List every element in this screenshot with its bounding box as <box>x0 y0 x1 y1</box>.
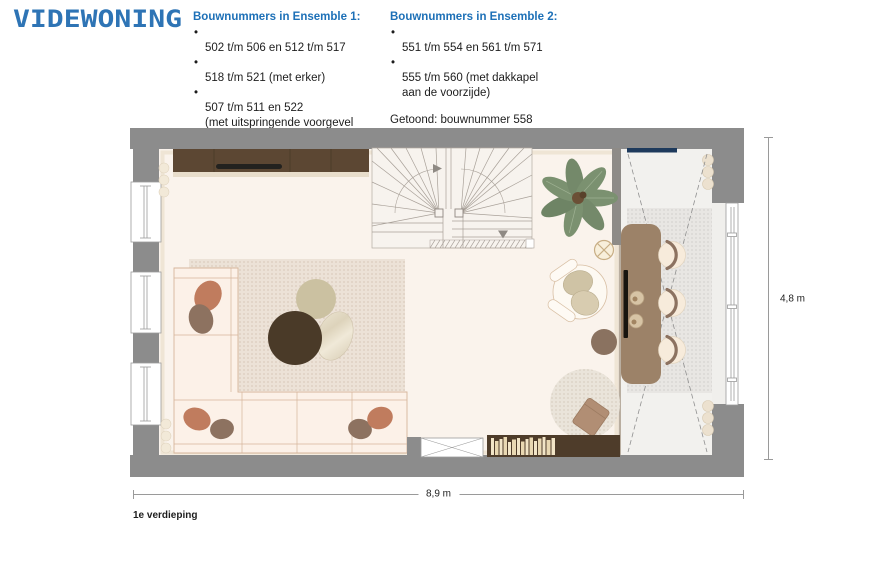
height-dimension-label: 4,8 m <box>780 293 805 304</box>
wall-top <box>130 128 744 149</box>
bookshelf <box>487 435 620 457</box>
ensemble-2-item-text: 555 t/m 560 (met dakkapel aan de voorzij… <box>402 72 538 99</box>
ensemble-1-item: •502 t/m 506 en 512 t/m 517 <box>193 26 385 56</box>
bullet-icon: • <box>194 56 198 71</box>
dining-set <box>621 224 686 384</box>
floor-plan-svg <box>130 128 744 477</box>
right-window <box>726 203 738 405</box>
ensemble-1-item-text: 502 t/m 506 en 512 t/m 517 <box>205 42 346 54</box>
stair-post <box>435 209 443 217</box>
bullet-icon: • <box>391 26 395 41</box>
chair <box>659 242 686 269</box>
left-windows <box>131 182 161 425</box>
wall-bottom <box>130 455 744 477</box>
bullet-icon: • <box>194 86 198 101</box>
ensemble-1-title: Bouwnummers in Ensemble 1: <box>193 10 385 25</box>
bullet-icon: • <box>391 56 395 71</box>
chair <box>659 337 686 364</box>
side-table <box>591 329 617 355</box>
wall-right-bottom-pier <box>712 404 744 459</box>
floor-plan <box>130 128 744 477</box>
ensemble-2-item: •551 t/m 554 en 561 t/m 571 <box>390 26 590 56</box>
stair-post <box>455 209 463 217</box>
ensemble-2-title: Bouwnummers in Ensemble 2: <box>390 10 590 25</box>
dimension-line <box>768 137 769 460</box>
round-rug <box>550 369 620 439</box>
tv-cabinet <box>173 149 369 177</box>
wall-right-top-pier <box>712 137 744 203</box>
rug-circle-dark <box>268 311 322 365</box>
stair-landing-hatch <box>430 240 532 248</box>
ensemble-1-item-text: 518 t/m 521 (met erker) <box>205 72 325 84</box>
ensemble-1-column: Bouwnummers in Ensemble 1: •502 t/m 506 … <box>193 10 385 146</box>
bottom-wall-furniture <box>407 435 620 457</box>
ensemble-2-item: •555 t/m 560 (met dakkapel aan de voorzi… <box>390 56 590 101</box>
floor-label: 1e verdieping <box>133 510 197 521</box>
cabinet-ledge <box>173 172 369 177</box>
navy-accent-bar <box>627 148 677 153</box>
width-dimension-label: 8,9 m <box>418 489 459 500</box>
table-runner <box>624 270 629 338</box>
height-dimension: 4,8 m <box>764 137 784 460</box>
window <box>131 272 161 333</box>
staircase <box>372 148 534 248</box>
shown-buildnumber-note: Getoond: bouwnummer 558 <box>390 113 590 128</box>
lamp-symbol-icon <box>595 241 614 260</box>
width-dimension: 8,9 m <box>133 489 744 499</box>
tv <box>216 164 282 169</box>
dining-chairs <box>659 242 686 364</box>
ensemble-2-item-text: 551 t/m 554 en 561 t/m 571 <box>402 42 543 54</box>
chair <box>659 290 686 317</box>
ensemble-1-item: •518 t/m 521 (met erker) <box>193 56 385 86</box>
crossed-cabinet <box>421 438 483 457</box>
bullet-icon: • <box>194 26 198 41</box>
window <box>131 363 161 425</box>
window <box>131 182 161 242</box>
window-sill-strip <box>712 203 726 405</box>
ensemble-2-column: Bouwnummers in Ensemble 2: •551 t/m 554 … <box>390 10 590 128</box>
brand-logo: VIDEWONING <box>13 7 182 32</box>
vide-railing <box>619 245 621 455</box>
